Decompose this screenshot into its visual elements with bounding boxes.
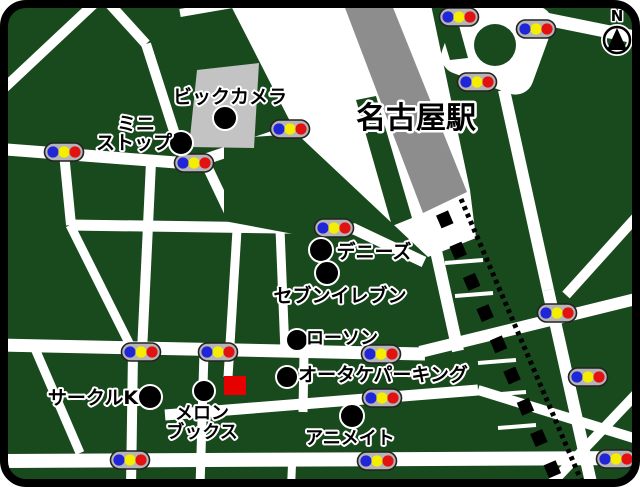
label-bic-camera: ビックカメラ (173, 86, 287, 108)
label-animate: アニメイト (305, 428, 395, 449)
poi-dot-ministop (169, 131, 193, 155)
traffic-light-icon (271, 120, 310, 138)
label-melon-books-line2: ブックス (166, 421, 237, 443)
traffic-light-icon (45, 143, 84, 161)
road (0, 458, 640, 461)
traffic-light-icon (517, 20, 556, 38)
traffic-light-icon (363, 389, 402, 407)
poi-dot-dennys (309, 238, 333, 262)
traffic-light-icon (122, 343, 161, 361)
traffic-light-icon (538, 304, 577, 322)
label-dennys: デニーズ (336, 240, 411, 263)
traffic-light-icon (440, 8, 479, 26)
poi-dot-melon-books (193, 380, 215, 402)
map-canvas: ビックカメラ ミニ ストップ 名古屋駅 デニーズ セブンイレブン ローソン オー… (0, 0, 640, 487)
label-nagoya-station: 名古屋駅 (356, 101, 476, 136)
road (64, 153, 71, 225)
poi-dot-animate (340, 404, 364, 428)
poi-dot-otake-parking (276, 366, 298, 388)
red-square-icon (224, 376, 246, 395)
poi-dot-seven-eleven (315, 261, 339, 285)
traffic-light-icon (199, 343, 238, 361)
poi-dot-lawson (286, 329, 308, 351)
label-lawson: ローソン (306, 328, 378, 349)
traffic-light-icon (111, 451, 150, 469)
label-otake-parking: オータケパーキング (298, 363, 468, 386)
traffic-light-icon (458, 73, 497, 91)
compass-n-label: N (611, 7, 624, 25)
area-map: ビックカメラ ミニ ストップ 名古屋駅 デニーズ セブンイレブン ローソン オー… (0, 0, 640, 487)
traffic-light-icon (358, 452, 397, 470)
traffic-light-icon (315, 219, 354, 237)
label-ministop-line2: ストップ (96, 131, 173, 154)
label-circle-k: サークルK (48, 387, 139, 409)
traffic-light-icon (569, 368, 608, 386)
label-melon-books-line1: メロン (175, 403, 229, 424)
label-seven-eleven: セブンイレブン (273, 284, 406, 307)
traffic-light-icon (175, 154, 214, 172)
poi-dot-circle-k (138, 385, 162, 409)
poi-dot-bic-camera (213, 106, 237, 130)
traffic-light-icon (597, 450, 636, 468)
rotary-island (474, 24, 516, 66)
